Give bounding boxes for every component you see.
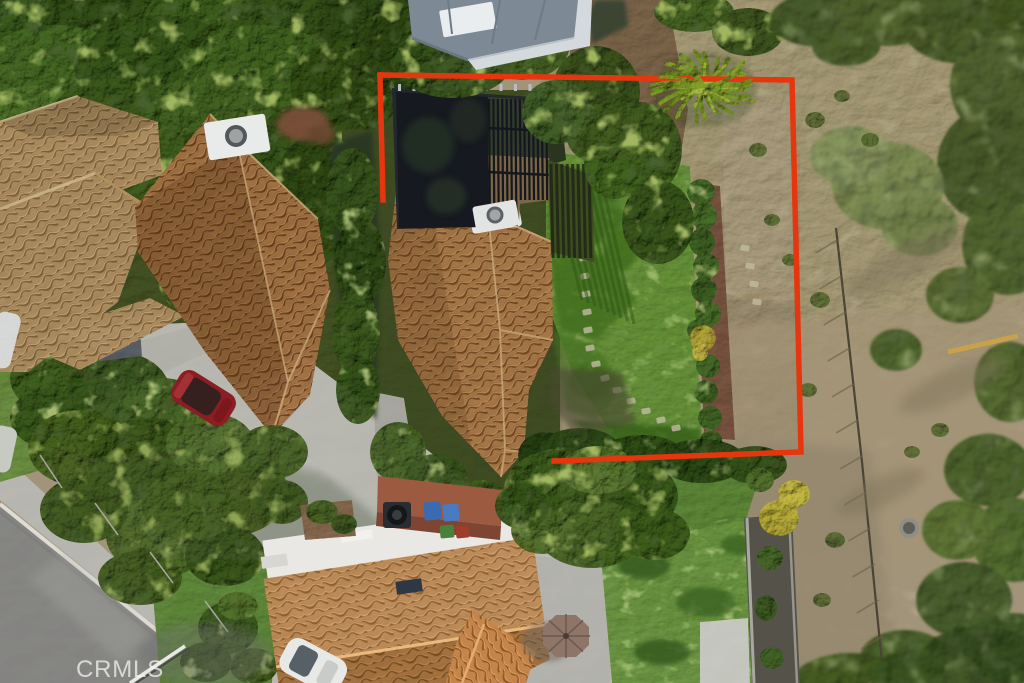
svg-text:CRMLS: CRMLS bbox=[76, 656, 164, 683]
